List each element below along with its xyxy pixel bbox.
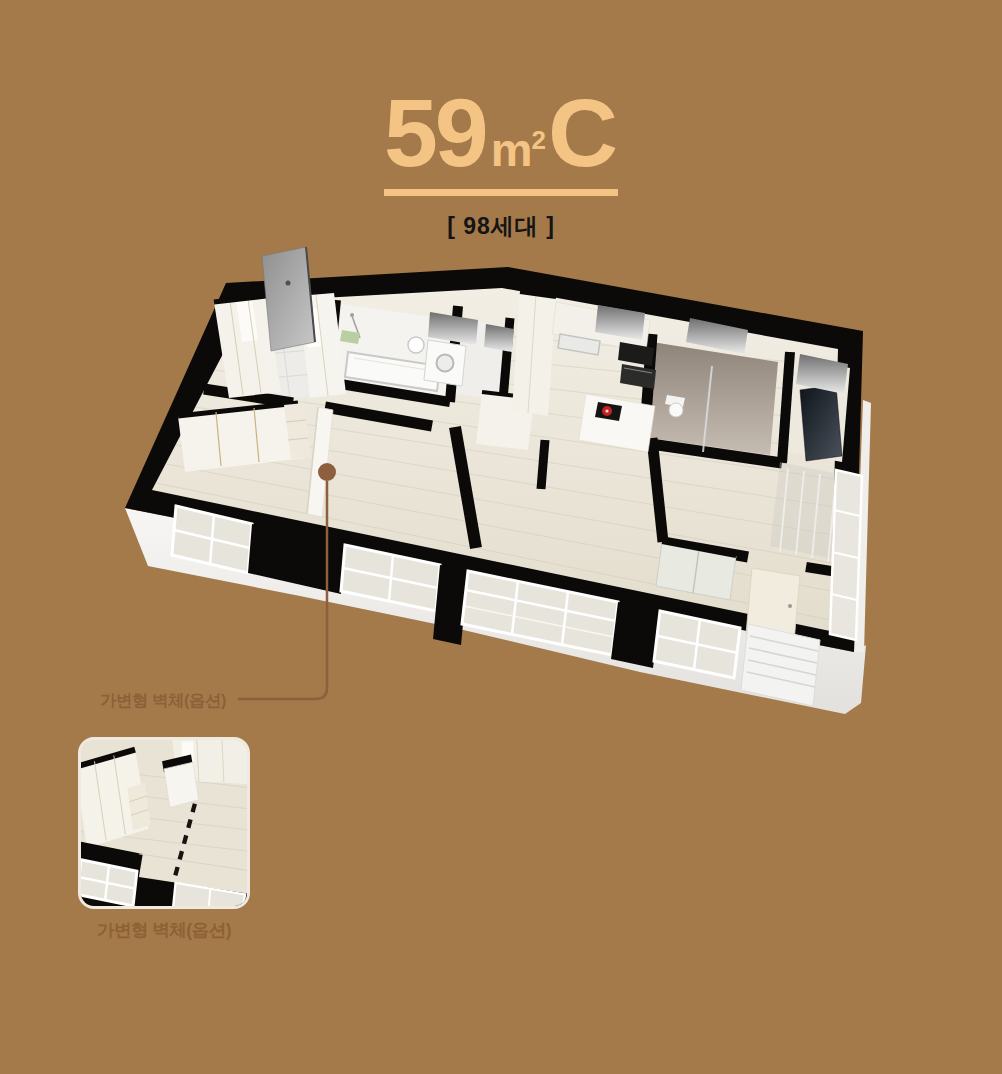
inset-caption: 가변형 벽체(옵션): [54, 918, 274, 942]
plan-type-letter: C: [548, 84, 618, 181]
page-title: 59 m2 C: [0, 84, 1002, 181]
area-unit-exponent: 2: [532, 125, 545, 155]
area-value: 59: [384, 84, 486, 181]
area-unit-m: m: [491, 123, 532, 176]
callout-dot: [318, 463, 336, 481]
units-count-badge: [ 98세대 ]: [0, 211, 1002, 242]
movable-wall-inset-image: [78, 737, 250, 909]
movable-wall-callout-label: 가변형 벽체(옵션): [96, 690, 226, 712]
title-underline: [384, 189, 618, 196]
area-unit: m2: [491, 126, 545, 173]
inset-rendering: [81, 740, 247, 906]
entrance-door: [262, 247, 315, 351]
bathroom2-floor: [643, 342, 778, 455]
page-background: 59 m2 C [ 98세대 ] 가변형 벽체(옵션): [0, 0, 1002, 1074]
